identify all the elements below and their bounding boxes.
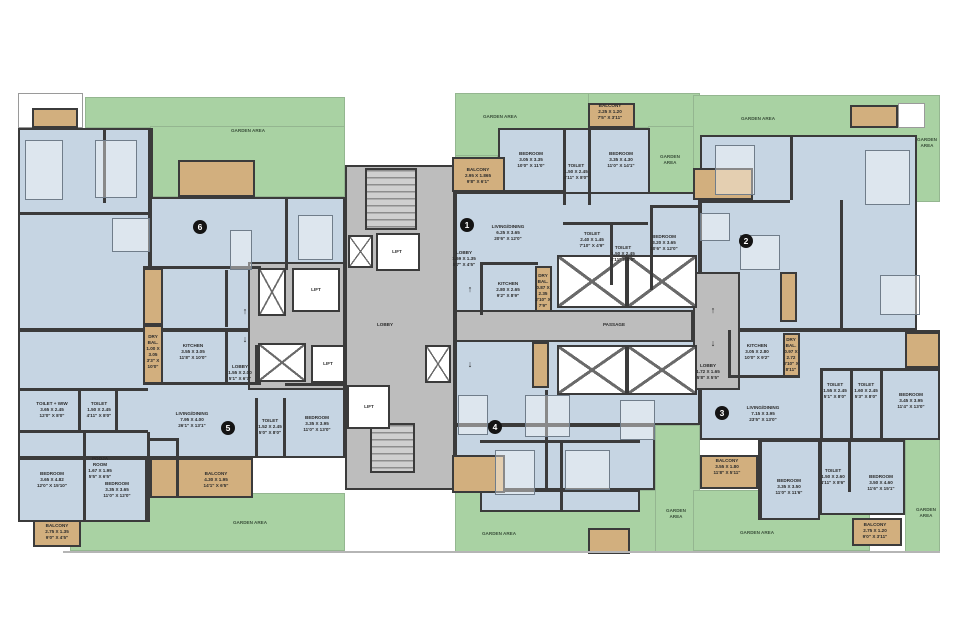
- garden-area-label: GARDEN AREA: [469, 531, 529, 537]
- bed: [620, 400, 655, 440]
- entry-arrow-down-icon: ↓: [243, 334, 248, 344]
- garden-label: GARDEN AREA: [660, 508, 692, 520]
- balcony-area: [780, 272, 797, 322]
- floor-plan-canvas: GARDEN AREAGARDEN AREAGARDEN AREAGARDEN …: [0, 0, 957, 625]
- lobby-label: LOBBY 1.55 X 2.00 5'1" X 6'7": [219, 364, 261, 382]
- wall: [560, 442, 563, 512]
- bedroom-label: BEDROOM 3.35 X 4.30 11'0" X 14'1": [595, 151, 647, 169]
- balcony-area: [905, 332, 940, 368]
- staircase: [370, 423, 415, 473]
- bed: [880, 275, 920, 315]
- toilet-label: TOILET 1.50 X 2.45 4'11" X 8'0": [561, 163, 591, 181]
- dining-table: [525, 395, 570, 437]
- garden-label: GARDEN AREA: [654, 154, 686, 166]
- wall: [650, 205, 700, 208]
- wall: [758, 440, 761, 520]
- garden-area: [905, 428, 940, 552]
- wall: [820, 368, 940, 371]
- sofa: [458, 395, 488, 435]
- passage: [455, 310, 693, 342]
- entry-arrow-down-icon: ↓: [468, 359, 473, 369]
- garden-area-label: GARDEN AREA: [218, 128, 278, 134]
- dry-label: DRY BAL. 1.00 X 3.05 3'3" X 10'0": [143, 334, 163, 370]
- bed: [715, 145, 755, 195]
- duct-shaft: [627, 345, 697, 395]
- garden-area-label: GARDEN AREA: [470, 114, 530, 120]
- bed: [25, 140, 63, 200]
- wall: [790, 135, 793, 200]
- bedroom-label: BEDROOM 3.35 X 3.65 11'0" X 12'0": [91, 481, 143, 499]
- balcony-area: [32, 108, 78, 128]
- wall: [728, 375, 800, 378]
- entry-arrow-up-icon: ↑: [711, 305, 716, 315]
- living-dining-label: LIVING/DINING 7.15 X 3.95 23'5" X 13'0": [732, 405, 794, 423]
- wall: [150, 128, 153, 198]
- balcony-label: BALCONY 2.95 X 1.865 9'8" X 6'1": [452, 167, 504, 185]
- balcony-area: [143, 268, 163, 325]
- toilet-wiw-label: TOILET + WIW 3.65 X 2.45 12'0" X 8'0": [25, 401, 80, 419]
- wall: [840, 200, 843, 330]
- terrace-area: [898, 103, 925, 128]
- unit-3-badge: 3: [715, 406, 729, 420]
- bedroom-label: BEDROOM 3.05 X 3.35 10'0" X 11'0": [505, 151, 557, 169]
- wall: [498, 190, 563, 193]
- bedroom-label: BEDROOM 3.35 X 3.50 11'0" X 11'6": [764, 478, 814, 496]
- toilet-label: TOILET 1.60 X 2.45 5'3" X 8'0": [851, 382, 881, 400]
- unit-5-badge: 5: [221, 421, 235, 435]
- balcony-label: BALCONY 3.55 X 1.80 11'8" X 5'11": [702, 458, 752, 476]
- balcony-label: BALCONY 4.30 X 1.95 14'1" X 6'5": [190, 471, 242, 489]
- wall: [147, 432, 150, 522]
- toilet-label: TOILET 1.50 X 2.60 4'11" X 8'6": [817, 468, 849, 486]
- wall: [176, 438, 179, 498]
- wall: [285, 197, 288, 270]
- bed: [95, 140, 137, 198]
- toilet-label: TOILET 1.55 X 2.45 5'1" X 8'0": [820, 382, 850, 400]
- bedroom-label: BEDROOM 3.45 X 3.95 11'4" X 13'0": [886, 392, 936, 410]
- kitchen-label: KITCHEN 2.80 X 2.65 9'2" X 8'9": [483, 281, 533, 299]
- wall: [225, 270, 228, 327]
- toilet-label: TOILET 1.50 X 2.45 4'11" X 8'0": [603, 245, 643, 263]
- lift-label: LIFT: [301, 287, 331, 293]
- plot-edge-line: [63, 551, 940, 553]
- wall: [285, 383, 345, 386]
- unit-1-badge: 1: [460, 218, 474, 232]
- living-dining-label: LIVING/DINING 6.25 X 3.65 20'6" X 12'0": [477, 224, 539, 242]
- balcony-label: BALCONY 2.25 X 1.20 7'5" X 3'11": [586, 103, 634, 121]
- bed: [865, 150, 910, 205]
- wall: [563, 222, 648, 225]
- balcony-area: [532, 342, 549, 388]
- bedroom-label: BEDROOM 3.65 X 4.82 12'0" X 15'10": [26, 471, 78, 489]
- duct-shaft: [557, 345, 627, 395]
- dry-label: DRY BAL. 0.97 X 2.72 3'10" X 8'11": [782, 337, 800, 373]
- wall: [18, 388, 148, 391]
- toilet-label: TOILET 1.50 X 2.45 4'11" X 8'0": [79, 401, 119, 419]
- dining-table: [112, 218, 150, 252]
- unit-6-badge: 6: [193, 220, 207, 234]
- wall: [143, 382, 261, 385]
- garden-area: [85, 97, 345, 128]
- garden-area-label: GARDEN AREA: [220, 520, 280, 526]
- entry-arrow-up-icon: ↑: [468, 284, 473, 294]
- entry-arrow-up-icon: ↑: [243, 306, 248, 316]
- wall: [480, 262, 538, 265]
- pooja-label: POOJA ROOM 1.67 X 1.95 5'5" X 6'5": [80, 456, 120, 480]
- entry-arrow-down-icon: ↓: [711, 338, 716, 348]
- lift-label: LIFT: [313, 361, 343, 367]
- bedroom-label: BEDROOM 3.35 X 3.95 11'0" X 13'0": [291, 415, 343, 433]
- duct-shaft: [348, 235, 373, 268]
- balcony-area: [850, 105, 898, 128]
- garden-label: GARDEN AREA: [911, 137, 943, 149]
- staircase: [365, 168, 417, 230]
- unit-4-badge: 4: [488, 420, 502, 434]
- duct-shaft: [425, 345, 451, 383]
- wall: [700, 200, 790, 203]
- sofa: [700, 213, 730, 241]
- wall: [728, 330, 731, 378]
- wall: [147, 438, 177, 441]
- kitchen-label: KITCHEN 3.05 X 2.80 10'0" X 9'2": [732, 343, 782, 361]
- balcony-area: [178, 160, 255, 197]
- passage-label: PASSAGE: [589, 322, 639, 328]
- living-dining-label: LIVING/DINING 7.95 X 4.00 26'1" X 13'1": [161, 411, 223, 429]
- bed: [495, 450, 535, 495]
- bedroom-label: BEDROOM 3.20 X 3.65 10'6" X 12'0": [639, 234, 689, 252]
- unit-2-badge: 2: [739, 234, 753, 248]
- wall: [18, 212, 150, 215]
- dry-label: DRY BAL. 0.87 X 2.35 2'10" X 7'9": [534, 273, 552, 309]
- garden-area-label: GARDEN AREA: [727, 530, 787, 536]
- wall: [820, 368, 823, 440]
- lobby-label: LOBBY: [365, 322, 405, 328]
- bedroom-label: BEDROOM 3.50 X 4.60 11'6" X 15'1": [856, 474, 906, 492]
- lobby-label: LOBBY 1.72 X 1.65 5'8" X 5'5": [688, 363, 728, 381]
- sofa: [230, 230, 252, 270]
- toilet-label: TOILET 1.52 X 2.45 5'0" X 8'0": [250, 418, 290, 436]
- duct-shaft: [258, 343, 306, 382]
- bed: [298, 215, 333, 260]
- lift-label: LIFT: [354, 404, 384, 410]
- kitchen-label: KITCHEN 3.55 X 3.05 11'8" X 10'0": [166, 343, 221, 361]
- bed: [565, 450, 610, 490]
- balcony-label: BALCONY 2.75 X 1.20 9'0" X 3'11": [851, 522, 899, 540]
- duct-shaft: [258, 268, 286, 316]
- balcony-label: BALCONY 2.75 X 1.35 9'0" X 4'5": [35, 523, 80, 541]
- garden-label: GARDEN AREA: [910, 507, 942, 519]
- wall: [880, 368, 883, 440]
- garden-area-label: GARDEN AREA: [728, 116, 788, 122]
- wall: [850, 368, 853, 440]
- lift-label: LIFT: [382, 249, 412, 255]
- lobby-label: LOBBY 1.69 X 1.35 5'7" X 4'5": [444, 250, 484, 268]
